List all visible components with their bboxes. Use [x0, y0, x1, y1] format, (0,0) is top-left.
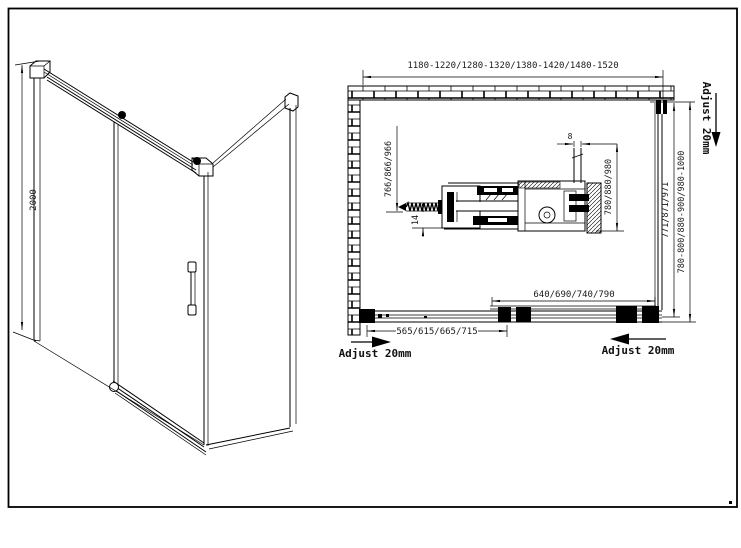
roller-left [118, 111, 126, 119]
roller-right [193, 157, 201, 165]
roller-housing [518, 148, 601, 233]
adjust-bottom-right-label: Adjust 20mm [602, 344, 675, 357]
sliding-door [114, 122, 208, 446]
left-wall [348, 100, 360, 335]
door-roller-block-b [516, 307, 531, 322]
side-panel [206, 93, 298, 449]
screw-washer [438, 200, 442, 214]
adjust-bottom-left-label: Adjust 20mm [339, 347, 412, 360]
floor-line [34, 341, 204, 445]
adjust-top-right: Adjust 20mm [700, 82, 721, 155]
adjust-arrow-left [610, 334, 629, 345]
door-roller-block-a [498, 307, 511, 322]
top-wall [348, 86, 674, 100]
technical-drawing-canvas: 2000 [0, 0, 741, 548]
adjust-bottom-left: Adjust 20mm [339, 337, 412, 361]
bottom-track [359, 306, 662, 323]
side-panel-label: 780/880/980 [604, 159, 614, 215]
door-panel-width-label: 640/690/740/790 [533, 290, 614, 300]
overall-depth-label: 780-800/880-900/980-1000 [677, 151, 687, 274]
glass-thickness-label: 8 [568, 132, 573, 141]
opening-width-label: 565/615/665/715 [396, 327, 477, 337]
glass-thickness-dimension: 8 [557, 132, 617, 147]
screw-thread [406, 203, 438, 211]
inner-depth-label: 771/871/971 [661, 182, 671, 238]
opening-width-dimension: 565/615/665/715 [367, 325, 507, 337]
door-panel-width-dimension: 640/690/740/790 [492, 290, 655, 306]
left-depth-dimension: 766/866/966 [384, 126, 403, 212]
glass-clamp-lower [569, 205, 589, 212]
adjust-arrow-right [372, 337, 391, 348]
glass-clamp-upper [569, 194, 589, 201]
door-handle [188, 262, 196, 315]
bottom-rail [110, 381, 207, 455]
plan-view: 1180-1220/1280-1320/1380-1420/1480-1520 … [339, 61, 721, 360]
iso-height-dimension: 2000 [13, 61, 40, 341]
track-end-right-b [642, 306, 659, 323]
inner-depth-dimension: 771/871/971 [650, 102, 695, 317]
iso-view: 2000 [13, 61, 298, 455]
corner-mark [729, 501, 732, 504]
screw-tip [398, 203, 406, 211]
wall-bracket-hatched [587, 183, 601, 233]
track-end-left [359, 309, 375, 323]
overall-width-label: 1180-1220/1280-1320/1380-1420/1480-1520 [407, 61, 618, 71]
adjust-bottom-right: Adjust 20mm [602, 334, 675, 358]
adjust-top-right-label: Adjust 20mm [700, 82, 713, 155]
top-rail [30, 61, 289, 176]
glass-offset-label: 14 [411, 215, 421, 225]
left-depth-label: 766/866/966 [384, 141, 394, 197]
track-end-right-a [616, 306, 637, 323]
